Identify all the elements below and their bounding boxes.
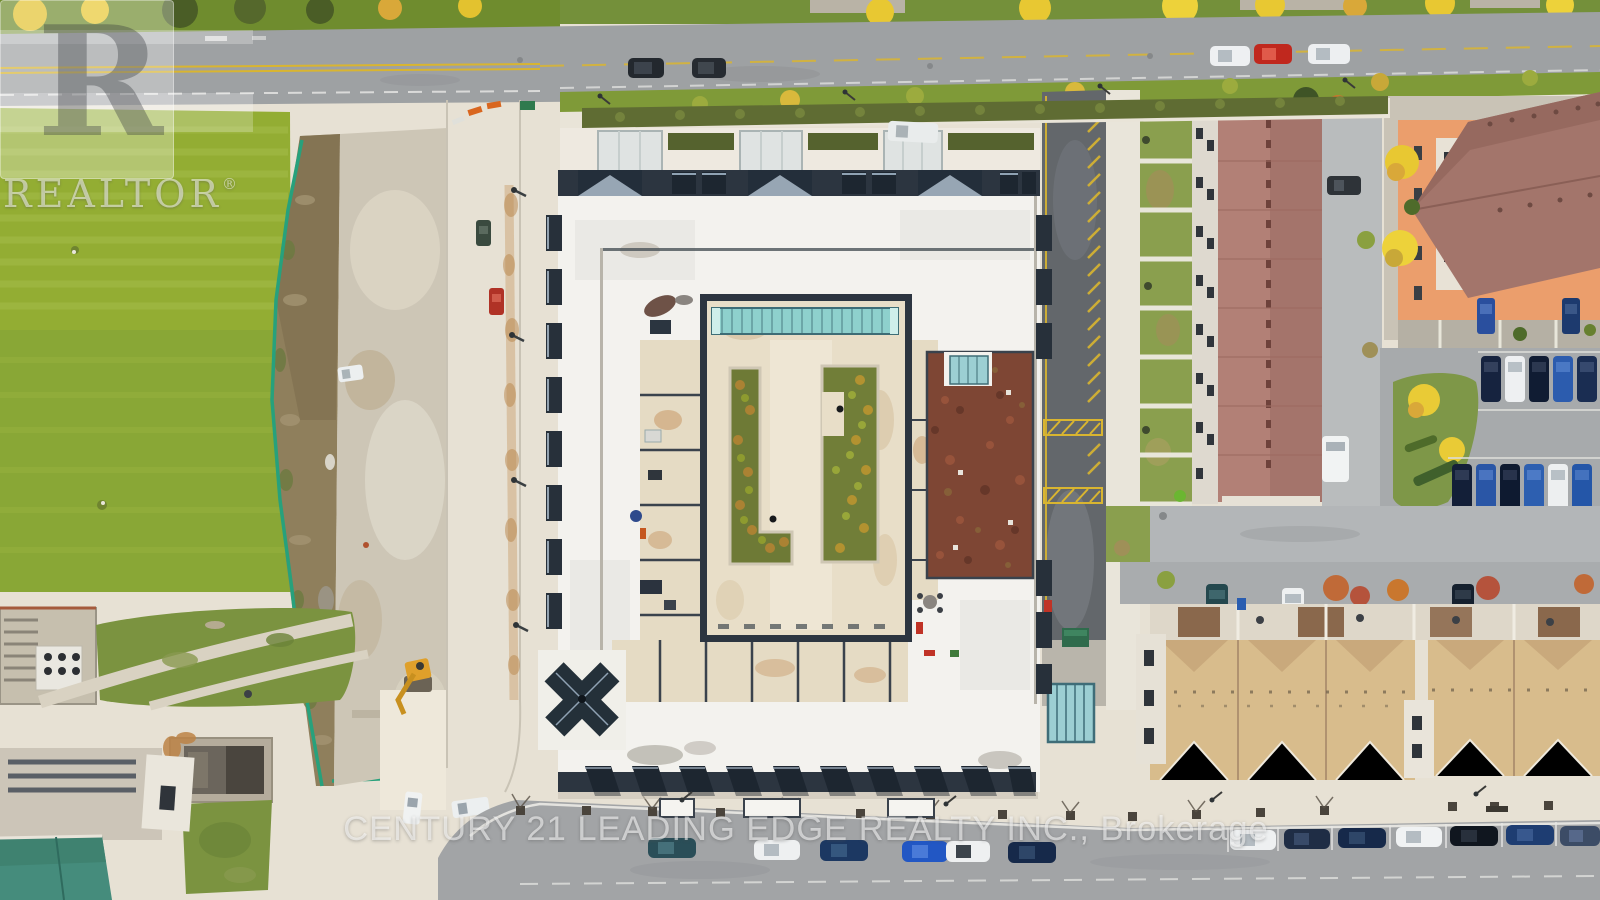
aerial-scene (0, 0, 1600, 900)
north-roof-terraces (560, 128, 1040, 174)
townhouse-backyards (1140, 112, 1192, 506)
glass-canopy (1048, 684, 1094, 742)
patio-table (923, 595, 937, 609)
aerial-photo: R REALTOR® CENTURY 21 LEADING EDGE REALT… (0, 0, 1600, 900)
east-sidewalk (1106, 90, 1140, 710)
north-fascia (558, 170, 1040, 198)
cupola (538, 650, 626, 750)
grass-mound-lower (182, 800, 272, 894)
parked-car-navy (1562, 298, 1580, 334)
planter-right (822, 366, 878, 562)
teal-roof-building (0, 836, 112, 900)
parking-row-upper (1481, 356, 1597, 402)
grass-field (0, 108, 292, 592)
fascia-bay (578, 170, 982, 197)
townhouse-row-red (1192, 87, 1382, 512)
grey-rooftop-building (0, 748, 195, 840)
condo-building (538, 128, 1052, 817)
tan-roof-block-b (1404, 640, 1600, 778)
courtyard (700, 294, 912, 642)
recycle-bin-blue (1237, 598, 1246, 610)
mid-right-driveway (1106, 506, 1600, 562)
parked-car-white-1 (402, 791, 422, 825)
tan-roof-block-a (1150, 640, 1415, 780)
courtyard-skylight (712, 308, 898, 334)
parked-car-blue (1477, 298, 1495, 334)
orange-building (1382, 92, 1600, 348)
white-van (1322, 436, 1349, 482)
rooftop-terraces (1150, 598, 1600, 640)
sedum-green-roof (927, 352, 1033, 578)
townhouses-bottom-right (1120, 562, 1600, 780)
